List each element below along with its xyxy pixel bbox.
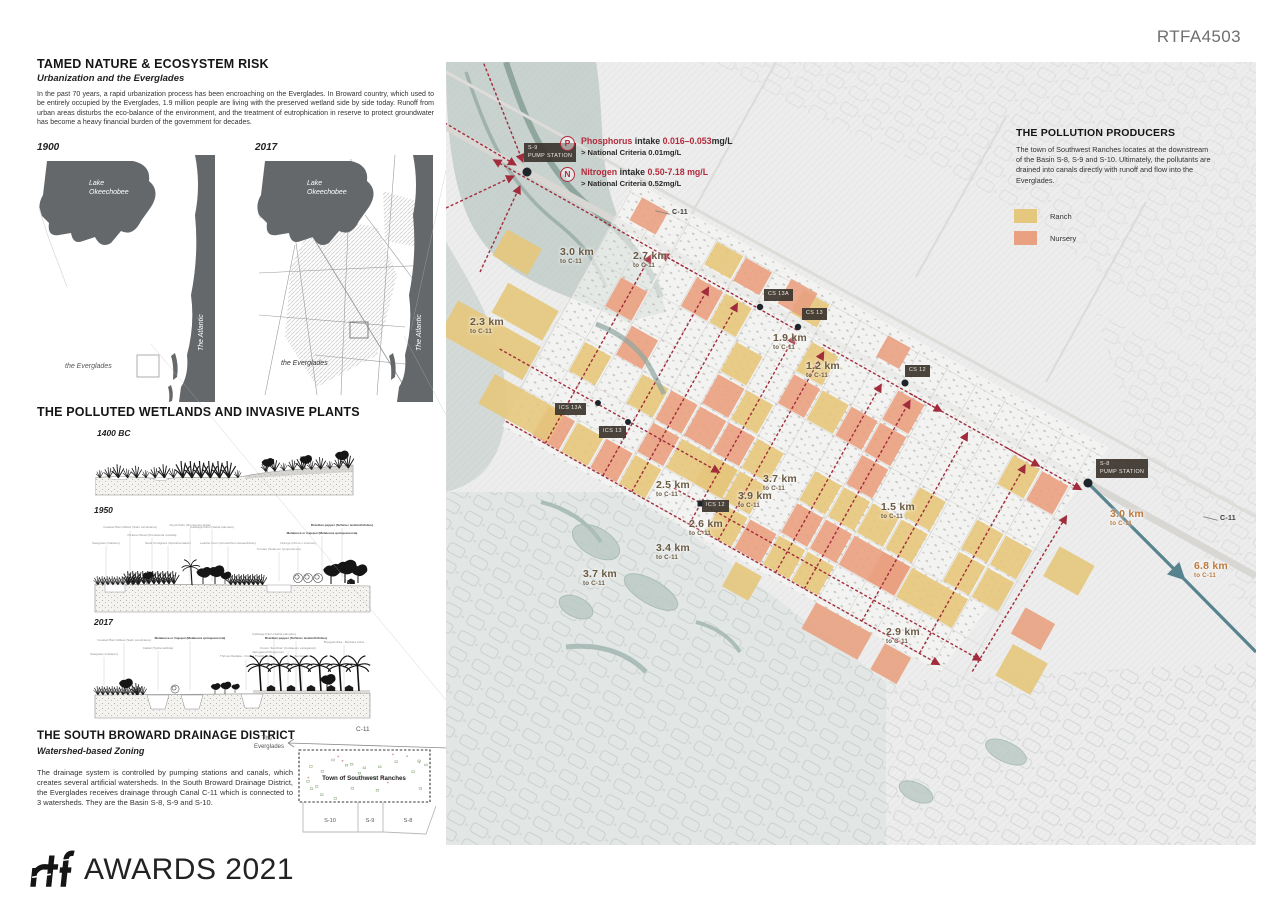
svg-text:Pickerel Weed (Pontederia cord: Pickerel Weed (Pontederia cordata): [128, 533, 177, 537]
cross-section-1950: Sawgrass (Cladium)Coastal Plain Willow (…: [90, 514, 375, 614]
svg-text:Tomato (Solanum lycopersicum): Tomato (Solanum lycopersicum): [257, 547, 301, 551]
svg-text:Sand Cordgrass (Spartina baker: Sand Cordgrass (Spartina bakeri): [145, 541, 191, 545]
producers-title: THE POLLUTION PRODUCERS: [1016, 127, 1175, 139]
era-2017: 2017: [94, 617, 113, 627]
cross-section-1400bc: [95, 438, 355, 496]
lake-label-2: Okeechobee: [89, 189, 129, 196]
legend-row: Ranch: [1014, 209, 1076, 223]
section2-title: THE POLLUTED WETLANDS AND INVASIVE PLANT…: [37, 405, 360, 419]
intake-line2: > National Criteria 0.52mg/L: [581, 179, 708, 188]
inset-everglades: Everglades: [254, 744, 284, 750]
svg-text:Orange (Citrus x sinensis): Orange (Citrus x sinensis): [280, 541, 316, 545]
inset-canal-label: C-11: [356, 726, 370, 733]
rtf-logo-icon: [28, 845, 78, 893]
producers-body: The town of Southwest Ranches locates at…: [1016, 145, 1216, 186]
atlantic-label: The Atlantic: [198, 314, 205, 351]
svg-text:Brazilian pepper (Schinus tere: Brazilian pepper (Schinus terebinthifoli…: [311, 523, 373, 527]
cross-section-2017: Sawgrass (Cladium)Coastal Plain Willow (…: [90, 627, 375, 720]
atlantic-label: The Atlantic: [416, 314, 423, 351]
lake-label-2: Okeechobee: [307, 189, 347, 196]
awards-text: AWARDS 2021: [84, 853, 294, 887]
map-2017: Lake Okeechobee the Everglades The Atlan…: [255, 155, 433, 402]
board-code: RTFA4503: [1157, 27, 1241, 47]
svg-text:Variegated Pittosporum: Variegated Pittosporum: [252, 650, 285, 654]
drainage-inset: C-11 The Everglades Town of Southwest Ra…: [240, 722, 450, 847]
legend-label: Ranch: [1050, 212, 1072, 221]
svg-text:Melaleuca or Cajeput (Melaleuc: Melaleuca or Cajeput (Melaleuca quinquen…: [287, 531, 358, 535]
map-year-2017: 2017: [255, 142, 277, 153]
map-year-1900: 1900: [37, 142, 59, 153]
section1-body: In the past 70 years, a rapid urbanizati…: [37, 90, 434, 128]
intake-row: PPhosphorus intake 0.016–0.053mg/L> Nati…: [560, 136, 733, 157]
basin-s9: S-9: [366, 818, 375, 824]
intake-line1: Phosphorus intake 0.016–0.053mg/L: [581, 136, 733, 146]
svg-text:Leather Fern (Acrostichum dana: Leather Fern (Acrostichum danaeifolium): [200, 541, 256, 545]
intake-line2: > National Criteria 0.01mg/L: [581, 148, 733, 157]
map-legend: RanchNursery: [1014, 209, 1076, 253]
everglades-marker-square: [137, 355, 159, 377]
everglades-label: the Everglades: [281, 360, 328, 367]
svg-text:Bougainvillea - Barbara Karst: Bougainvillea - Barbara Karst: [324, 640, 364, 644]
basin-s8: S-8: [404, 818, 413, 824]
map-1900: Lake Okeechobee the Everglades The Atlan…: [37, 155, 215, 402]
lake-shape: [39, 161, 155, 245]
section3-subtitle: Watershed-based Zoning: [37, 746, 144, 756]
svg-text:Brazilian pepper (Schinus tere: Brazilian pepper (Schinus terebinthifoli…: [265, 636, 327, 640]
legend-swatch: [1014, 209, 1037, 223]
svg-text:Croton 'Zanzibar' (Codiaeum va: Croton 'Zanzibar' (Codiaeum variegatum): [260, 646, 317, 650]
legend-swatch: [1014, 231, 1037, 245]
svg-text:Cattail (Typha latifolia): Cattail (Typha latifolia): [143, 646, 174, 650]
atlantic-shape: [179, 155, 215, 402]
nutrient-symbol-icon: N: [560, 167, 575, 182]
inset-the: The: [262, 736, 273, 742]
vegetation-1950: [94, 560, 368, 585]
vegetation-2017: [94, 656, 371, 695]
svg-text:Coastal Plain Willow (Salix ca: Coastal Plain Willow (Salix caroliniana): [103, 525, 156, 529]
legend-label: Nursery: [1050, 234, 1076, 243]
intake-text: Nitrogen intake 0.50-7.18 mg/L> National…: [581, 167, 708, 188]
intake-text: Phosphorus intake 0.016–0.053mg/L> Natio…: [581, 136, 733, 157]
svg-text:Succulents: Succulents: [294, 654, 310, 658]
inset-town-label: Town of Southwest Ranches: [322, 775, 406, 782]
svg-text:Melaleuca or Cajeput (Melaleuc: Melaleuca or Cajeput (Melaleuca quinquen…: [155, 636, 226, 640]
svg-text:Sawgrass (Cladium): Sawgrass (Cladium): [92, 541, 120, 545]
intake-row: NNitrogen intake 0.50-7.18 mg/L> Nationa…: [560, 167, 733, 188]
section1-title: TAMED NATURE & ECOSYSTEM RISK: [37, 57, 269, 71]
legend-row: Nursery: [1014, 231, 1076, 245]
lake-label-1: Lake: [307, 180, 322, 187]
nutrient-symbol-icon: P: [560, 136, 575, 151]
svg-text:Sawgrass (Cladium): Sawgrass (Cladium): [90, 652, 118, 656]
atlantic-shape: [397, 155, 433, 402]
basin-s10: S-10: [324, 818, 336, 824]
intake-line1: Nitrogen intake 0.50-7.18 mg/L: [581, 167, 708, 177]
era-1400bc: 1400 BC: [97, 428, 131, 438]
section1-subtitle: Urbanization and the Everglades: [37, 73, 184, 84]
everglades-label: the Everglades: [65, 363, 112, 370]
poster-page: RTFA4503 TAMED NATURE & ECOSYSTEM RISK U…: [0, 0, 1273, 900]
svg-text:Cabbage Palm (Sabal palmetto): Cabbage Palm (Sabal palmetto): [190, 525, 234, 529]
intake-annotation: PPhosphorus intake 0.016–0.053mg/L> Nati…: [560, 136, 733, 198]
svg-text:Coastal Plain Willow (Salix ca: Coastal Plain Willow (Salix caroliniana): [97, 638, 150, 642]
lake-label-1: Lake: [89, 180, 104, 187]
